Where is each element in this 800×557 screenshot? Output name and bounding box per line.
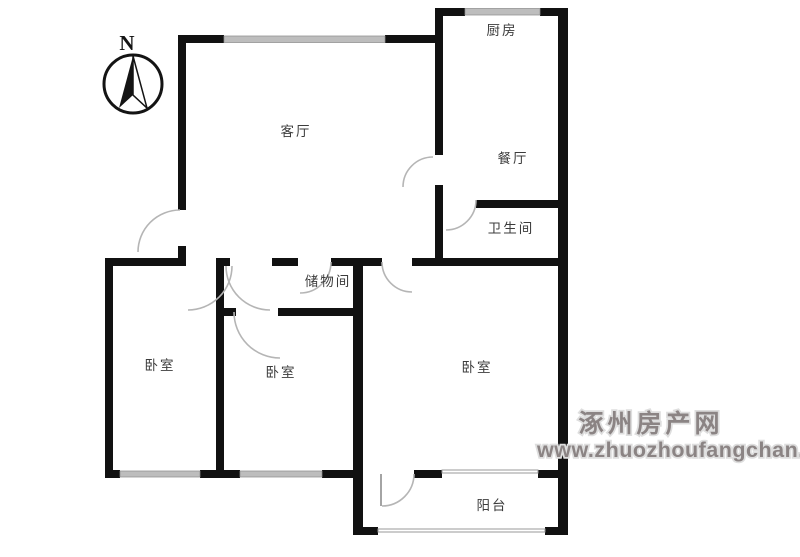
window bbox=[442, 470, 538, 473]
wall bbox=[105, 258, 186, 266]
room-label-storage-room: 储物间 bbox=[305, 274, 352, 289]
window bbox=[240, 471, 322, 477]
door-arc-entrance bbox=[138, 210, 180, 252]
wall bbox=[278, 308, 360, 316]
wall bbox=[435, 8, 443, 155]
compass-north-label: N bbox=[119, 31, 134, 55]
door-arc-balcony bbox=[382, 474, 414, 506]
wall bbox=[105, 258, 113, 478]
window bbox=[120, 471, 200, 477]
door-arc-bedroom-right bbox=[382, 262, 412, 292]
door-arc-dining bbox=[403, 157, 433, 187]
window bbox=[224, 36, 385, 43]
wall bbox=[216, 258, 224, 478]
north-compass: N bbox=[104, 31, 162, 113]
watermark-url: www.zhuozhoufangchan.com bbox=[536, 438, 800, 462]
watermark-site-name: 涿州房产网 bbox=[578, 409, 723, 438]
room-labels-layer: 厨房 客厅 餐厅 卫生间 储物间 卧室 卧室 卧室 阳台 bbox=[145, 23, 535, 513]
room-label-kitchen: 厨房 bbox=[487, 23, 518, 38]
doors-layer bbox=[138, 157, 476, 506]
wall bbox=[272, 258, 298, 266]
room-label-balcony: 阳台 bbox=[477, 498, 508, 513]
watermark: 涿州房产网 www.zhuozhoufangchan.com bbox=[536, 409, 800, 462]
floor-plan-drawing: N 厨房 客厅 餐厅 卫生间 储物间 卧室 卧室 卧室 阳台 涿州房产网 www… bbox=[0, 0, 800, 557]
room-label-bedroom-middle: 卧室 bbox=[266, 364, 297, 380]
compass-needle-icon bbox=[133, 56, 147, 108]
wall bbox=[414, 470, 442, 478]
door-arc-hall-right bbox=[226, 266, 270, 310]
window bbox=[465, 9, 540, 16]
wall bbox=[385, 35, 443, 43]
wall bbox=[476, 200, 568, 208]
room-label-bedroom-right: 卧室 bbox=[462, 359, 493, 375]
door-arc-bedroom-middle bbox=[234, 312, 280, 358]
room-label-dining-room: 餐厅 bbox=[498, 151, 529, 166]
wall bbox=[435, 185, 443, 266]
room-label-bathroom: 卫生间 bbox=[488, 221, 535, 236]
compass-needle-icon bbox=[119, 56, 133, 108]
room-label-living-room: 客厅 bbox=[281, 123, 312, 139]
door-arc-bathroom bbox=[446, 200, 476, 230]
door-arc-hall-left bbox=[188, 266, 232, 310]
wall bbox=[178, 246, 186, 266]
window bbox=[378, 529, 545, 532]
floor-plan-page: N 厨房 客厅 餐厅 卫生间 储物间 卧室 卧室 卧室 阳台 涿州房产网 www… bbox=[0, 0, 800, 557]
wall bbox=[178, 35, 186, 210]
room-label-bedroom-left: 卧室 bbox=[145, 357, 176, 373]
walls-layer bbox=[105, 8, 568, 535]
wall bbox=[353, 258, 363, 535]
